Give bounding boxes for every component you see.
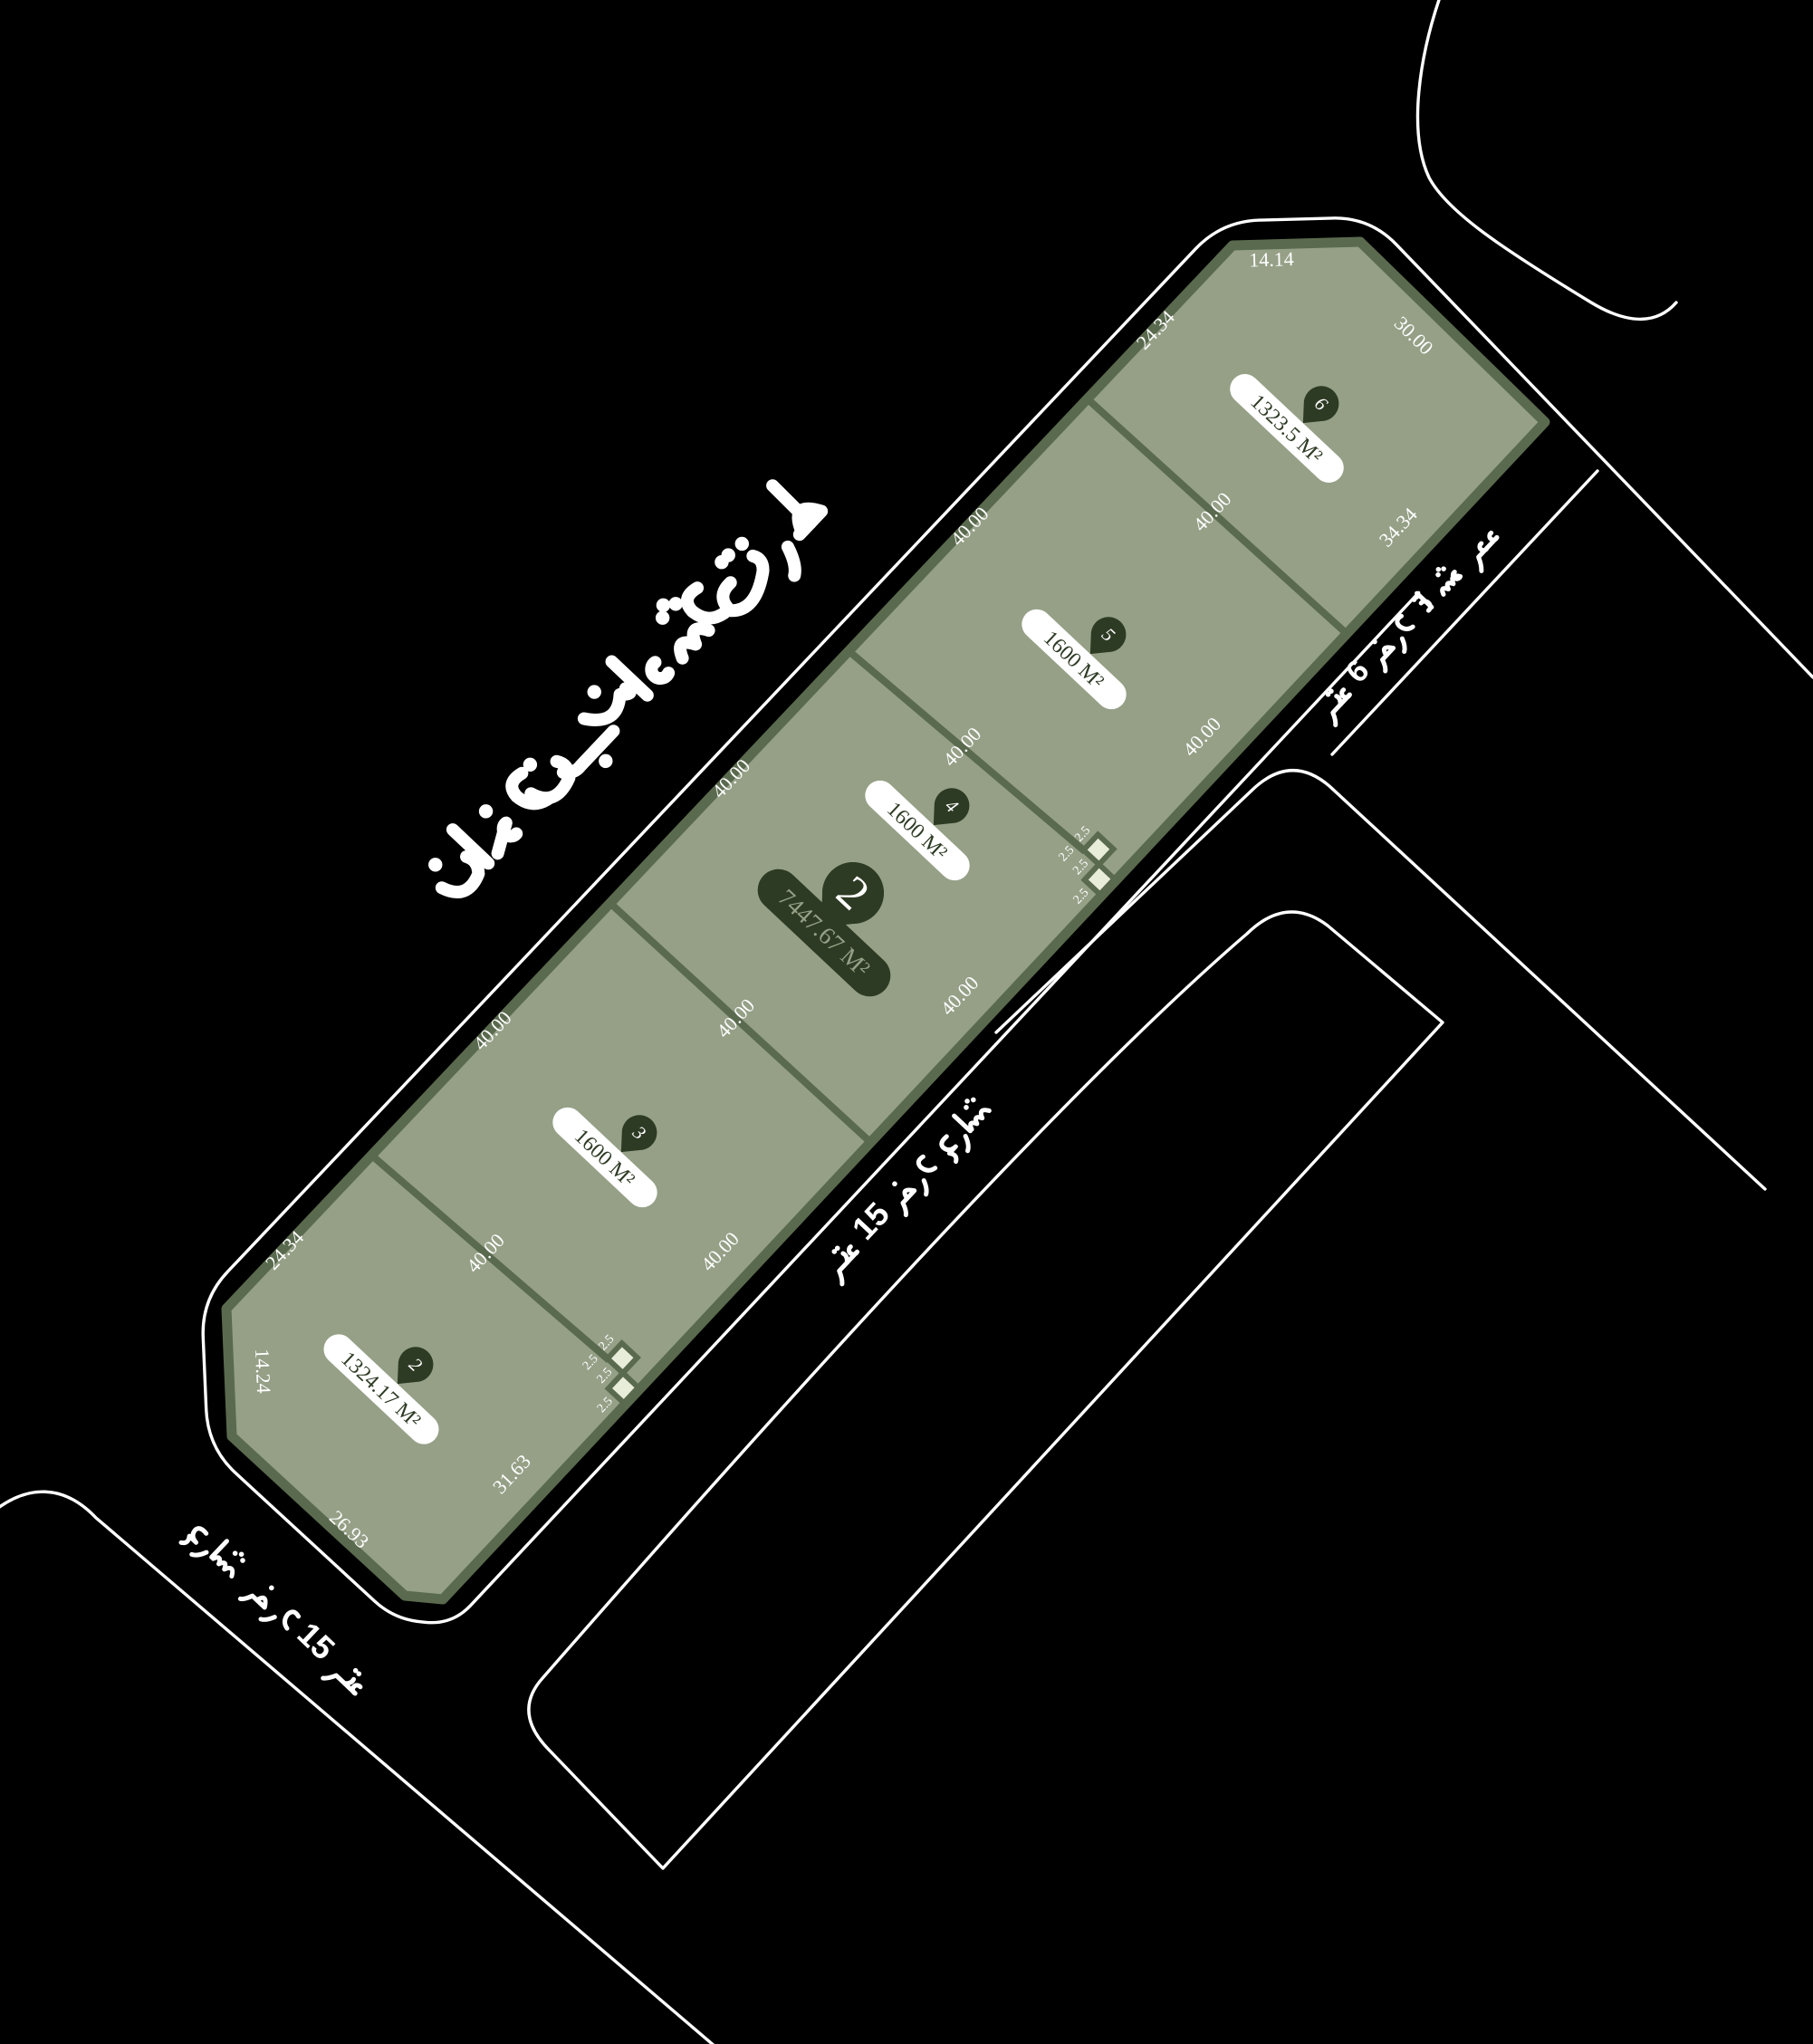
svg-text:14.14: 14.14: [1249, 247, 1294, 271]
svg-text:14.24: 14.24: [251, 1348, 275, 1395]
